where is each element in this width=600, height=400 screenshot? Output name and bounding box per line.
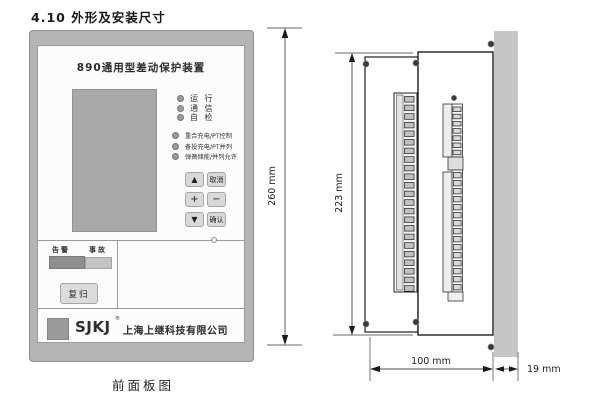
section-title: 4.10 外形及安装尺寸 xyxy=(31,7,166,26)
led-indicator-icon xyxy=(177,114,184,121)
led-indicator-icon xyxy=(172,153,179,160)
screw-icon xyxy=(451,95,456,100)
terminal-cell xyxy=(405,208,415,214)
fault-indicator xyxy=(85,257,112,269)
terminal-cell xyxy=(405,226,415,232)
terminal-cell xyxy=(453,150,461,155)
led-label: 重合充电/PT控制 xyxy=(185,130,232,140)
led-indicator-icon xyxy=(177,105,184,112)
keypad-plus-button: + xyxy=(185,192,204,207)
terminal-cell xyxy=(405,277,415,283)
screw-icon xyxy=(488,41,494,47)
brand-abbr: SJKJ xyxy=(75,318,111,336)
terminal-cell xyxy=(453,261,461,266)
terminal-strip-left xyxy=(394,93,417,292)
dim-label-260: 260 mm xyxy=(267,166,278,206)
led-indicator-icon xyxy=(172,143,179,150)
terminal-cell xyxy=(453,229,461,234)
terminal-cell xyxy=(405,286,415,292)
reset-button: 复归 xyxy=(60,283,98,304)
dimension-front-height: 260 mm xyxy=(267,28,302,345)
figure-caption: 前面板图 xyxy=(112,375,174,394)
terminal-strip-right xyxy=(443,95,463,301)
keypad-confirm-button: 确认 xyxy=(207,212,226,227)
terminal-cell xyxy=(453,269,461,274)
keypad-down-button: ▼ xyxy=(185,212,204,227)
side-view-figure: 260 mm 223 mm xyxy=(255,0,600,400)
terminal-cell xyxy=(453,114,461,119)
brand-logo-icon xyxy=(47,318,69,340)
terminal-cell xyxy=(405,140,415,146)
brand-company-name: 上海上继科技有限公司 xyxy=(123,322,228,337)
terminal-cell xyxy=(453,107,461,112)
screw-icon xyxy=(363,321,369,327)
terminal-cell xyxy=(405,260,415,266)
screw-icon xyxy=(413,60,419,66)
terminal-cell xyxy=(405,157,415,163)
dim-label-100: 100 mm xyxy=(411,356,451,367)
terminal-cell xyxy=(405,165,415,171)
lcd-screen xyxy=(72,89,157,232)
registered-mark-icon: ® xyxy=(115,316,120,322)
terminal-cell xyxy=(453,245,461,250)
led-label: 备投充电/PT并列 xyxy=(185,141,232,151)
panel-screw-icon xyxy=(211,237,217,243)
terminal-cell xyxy=(453,181,461,186)
fault-label: 事故 xyxy=(89,245,107,255)
terminal-cell xyxy=(405,217,415,223)
terminal-cell xyxy=(453,197,461,202)
dimension-case-depth: 100 mm xyxy=(370,337,493,381)
led-selfcheck: 自 检 xyxy=(177,112,215,123)
panel-divider-vertical xyxy=(117,240,118,308)
terminal-cell xyxy=(405,174,415,180)
led-label: 弹簧储能/并列允许 xyxy=(185,151,237,161)
terminal-cell xyxy=(405,269,415,275)
terminal-cell xyxy=(453,173,461,178)
alarm-indicator xyxy=(49,256,85,269)
led-label: 自 检 xyxy=(190,112,215,123)
keypad-cancel-button: 取消 xyxy=(207,172,226,187)
terminal-cell xyxy=(405,251,415,257)
terminal-cell xyxy=(405,148,415,154)
terminal-cell xyxy=(405,234,415,240)
terminal-cell xyxy=(453,221,461,226)
front-panel-figure: 890通用型差动保护装置 运 行 通 信 自 检 重合充电/PT控制 xyxy=(29,30,254,362)
screw-icon xyxy=(363,61,369,67)
terminal-cell xyxy=(453,143,461,148)
terminal-cell xyxy=(405,114,415,120)
led-indicator-icon xyxy=(172,132,179,139)
terminal-cell xyxy=(405,122,415,128)
terminal-cell xyxy=(453,129,461,134)
terminal-cell xyxy=(405,131,415,137)
brand-bar: SJKJ ® 上海上继科技有限公司 xyxy=(38,314,244,342)
dim-label-223: 223 mm xyxy=(334,173,345,213)
alarm-label: 告警 xyxy=(52,245,70,255)
terminal-cell xyxy=(453,253,461,258)
device-title: 890通用型差动保护装置 xyxy=(38,60,244,75)
terminal-cell xyxy=(405,191,415,197)
terminal-cell xyxy=(453,136,461,141)
led-backup-charge: 备投充电/PT并列 xyxy=(172,141,234,151)
screw-icon xyxy=(488,344,494,350)
terminal-cell xyxy=(453,285,461,290)
keypad-up-button: ▲ xyxy=(185,172,204,187)
terminal-cell xyxy=(405,243,415,249)
terminal-cell xyxy=(453,237,461,242)
screw-icon xyxy=(413,319,419,325)
front-panel-face: 890通用型差动保护装置 运 行 通 信 自 检 重合充电/PT控制 xyxy=(37,45,245,343)
terminal-cell xyxy=(405,105,415,111)
terminal-cell xyxy=(453,277,461,282)
mounting-panel xyxy=(494,31,518,357)
dim-label-19: 19 mm xyxy=(527,364,561,375)
terminal-cell xyxy=(405,183,415,189)
led-indicator-icon xyxy=(177,95,184,102)
terminal-cell xyxy=(453,213,461,218)
manual-page: 4.10 外形及安装尺寸 890通用型差动保护装置 运 行 通 信 自 检 重合 xyxy=(0,0,600,400)
terminal-cell xyxy=(453,189,461,194)
keypad-minus-button: − xyxy=(207,192,226,207)
led-reclose-charge: 重合充电/PT控制 xyxy=(172,130,234,140)
terminal-cell xyxy=(405,97,415,103)
terminal-cell xyxy=(453,205,461,210)
led-spring-storage: 弹簧储能/并列允许 xyxy=(172,151,239,161)
terminal-cell xyxy=(453,121,461,126)
terminal-cell xyxy=(405,200,415,206)
panel-divider-bottom xyxy=(38,308,244,309)
